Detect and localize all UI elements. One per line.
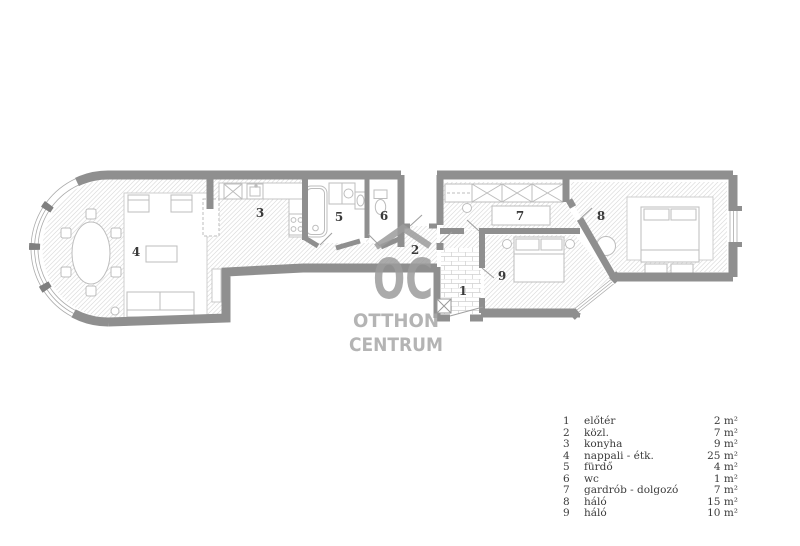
legend-area: 4 m² <box>714 462 738 474</box>
floor-plan-page: OC OTTHON CENTRUM 1 2 3 4 5 6 7 8 9 1 el… <box>0 0 800 546</box>
legend-name: fürdő <box>584 462 714 474</box>
room-label-1: 1 <box>459 284 467 298</box>
legend-name: konyha <box>584 439 714 451</box>
room-label-5: 5 <box>335 210 343 224</box>
legend-name: háló <box>584 508 707 520</box>
legend-name: előtér <box>584 416 714 428</box>
room-label-3: 3 <box>256 206 264 220</box>
legend-num: 7 <box>563 485 584 497</box>
legend-row: 3 konyha 9 m² <box>563 439 738 451</box>
legend-row: 1 előtér 2 m² <box>563 416 738 428</box>
legend-row: 9 háló 10 m² <box>563 508 738 520</box>
legend-area: 2 m² <box>714 416 738 428</box>
legend-num: 1 <box>563 416 584 428</box>
room-label-9: 9 <box>498 269 506 283</box>
legend-num: 5 <box>563 462 584 474</box>
legend-area: 9 m² <box>714 439 738 451</box>
window-room8 <box>728 206 743 247</box>
legend-num: 3 <box>563 439 584 451</box>
logo-word-otthon: OTTHON <box>353 310 439 332</box>
logo-monogram: OC <box>373 247 433 311</box>
legend-area: 10 m² <box>707 508 738 520</box>
room-label-7: 7 <box>516 209 524 223</box>
room-legend: 1 előtér 2 m² 2 közl. 7 m² 3 konyha 9 m²… <box>563 416 738 520</box>
room-label-4: 4 <box>132 245 140 259</box>
room-label-6: 6 <box>380 209 388 223</box>
legend-area: 7 m² <box>714 485 738 497</box>
room-label-8: 8 <box>597 209 605 223</box>
entry-shaft <box>437 299 451 313</box>
legend-row: 7 gardrób - dolgozó 7 m² <box>563 485 738 497</box>
legend-name: gardrób - dolgozó <box>584 485 714 497</box>
room-label-2: 2 <box>411 243 419 257</box>
legend-num: 9 <box>563 508 584 520</box>
legend-row: 5 fürdő 4 m² <box>563 462 738 474</box>
logo-word-centrum: CENTRUM <box>349 334 443 356</box>
